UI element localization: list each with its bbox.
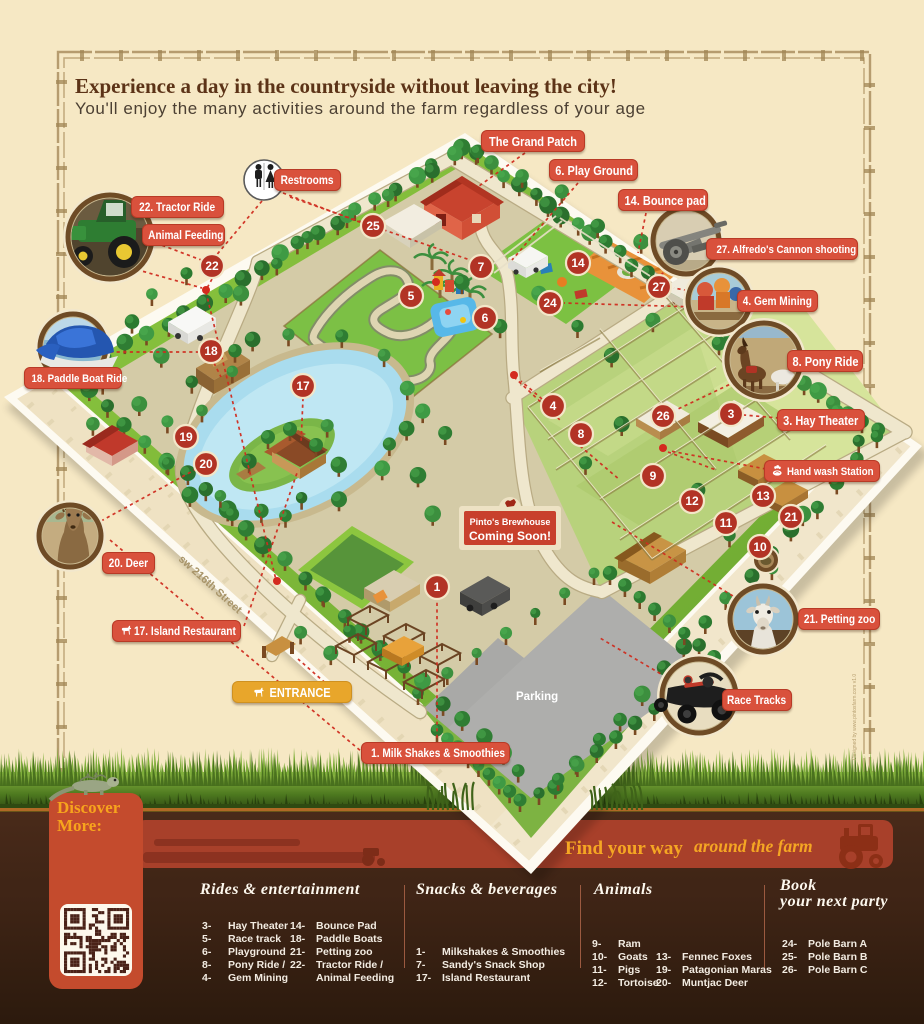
svg-text:10: 10 <box>753 540 767 554</box>
svg-text:Pinto's Brewhouse: Pinto's Brewhouse <box>470 517 551 527</box>
svg-text:Coming Soon!: Coming Soon! <box>469 529 551 543</box>
svg-text:26: 26 <box>656 409 670 423</box>
svg-text:24: 24 <box>543 296 557 310</box>
svg-text:12: 12 <box>685 494 699 508</box>
svg-text:1: 1 <box>434 580 441 594</box>
svg-text:14: 14 <box>571 256 585 270</box>
svg-text:7: 7 <box>478 260 485 274</box>
svg-text:25: 25 <box>366 219 380 233</box>
svg-text:4: 4 <box>550 399 557 413</box>
svg-text:22: 22 <box>205 259 219 273</box>
svg-text:5: 5 <box>408 289 415 303</box>
svg-text:6: 6 <box>482 311 489 325</box>
svg-text:17: 17 <box>296 379 310 393</box>
svg-text:13: 13 <box>756 489 770 503</box>
svg-text:21: 21 <box>784 510 798 524</box>
svg-text:27: 27 <box>652 280 666 294</box>
svg-text:11: 11 <box>720 516 733 530</box>
svg-text:20: 20 <box>199 457 213 471</box>
svg-text:Designed by www.pintosfarm.com: Designed by www.pintosfarm.com v1.0 <box>852 674 858 760</box>
svg-text:3: 3 <box>728 407 735 421</box>
svg-text:19: 19 <box>179 430 193 444</box>
svg-text:18: 18 <box>204 344 218 358</box>
svg-text:9: 9 <box>650 469 657 483</box>
svg-text:8: 8 <box>578 427 585 441</box>
